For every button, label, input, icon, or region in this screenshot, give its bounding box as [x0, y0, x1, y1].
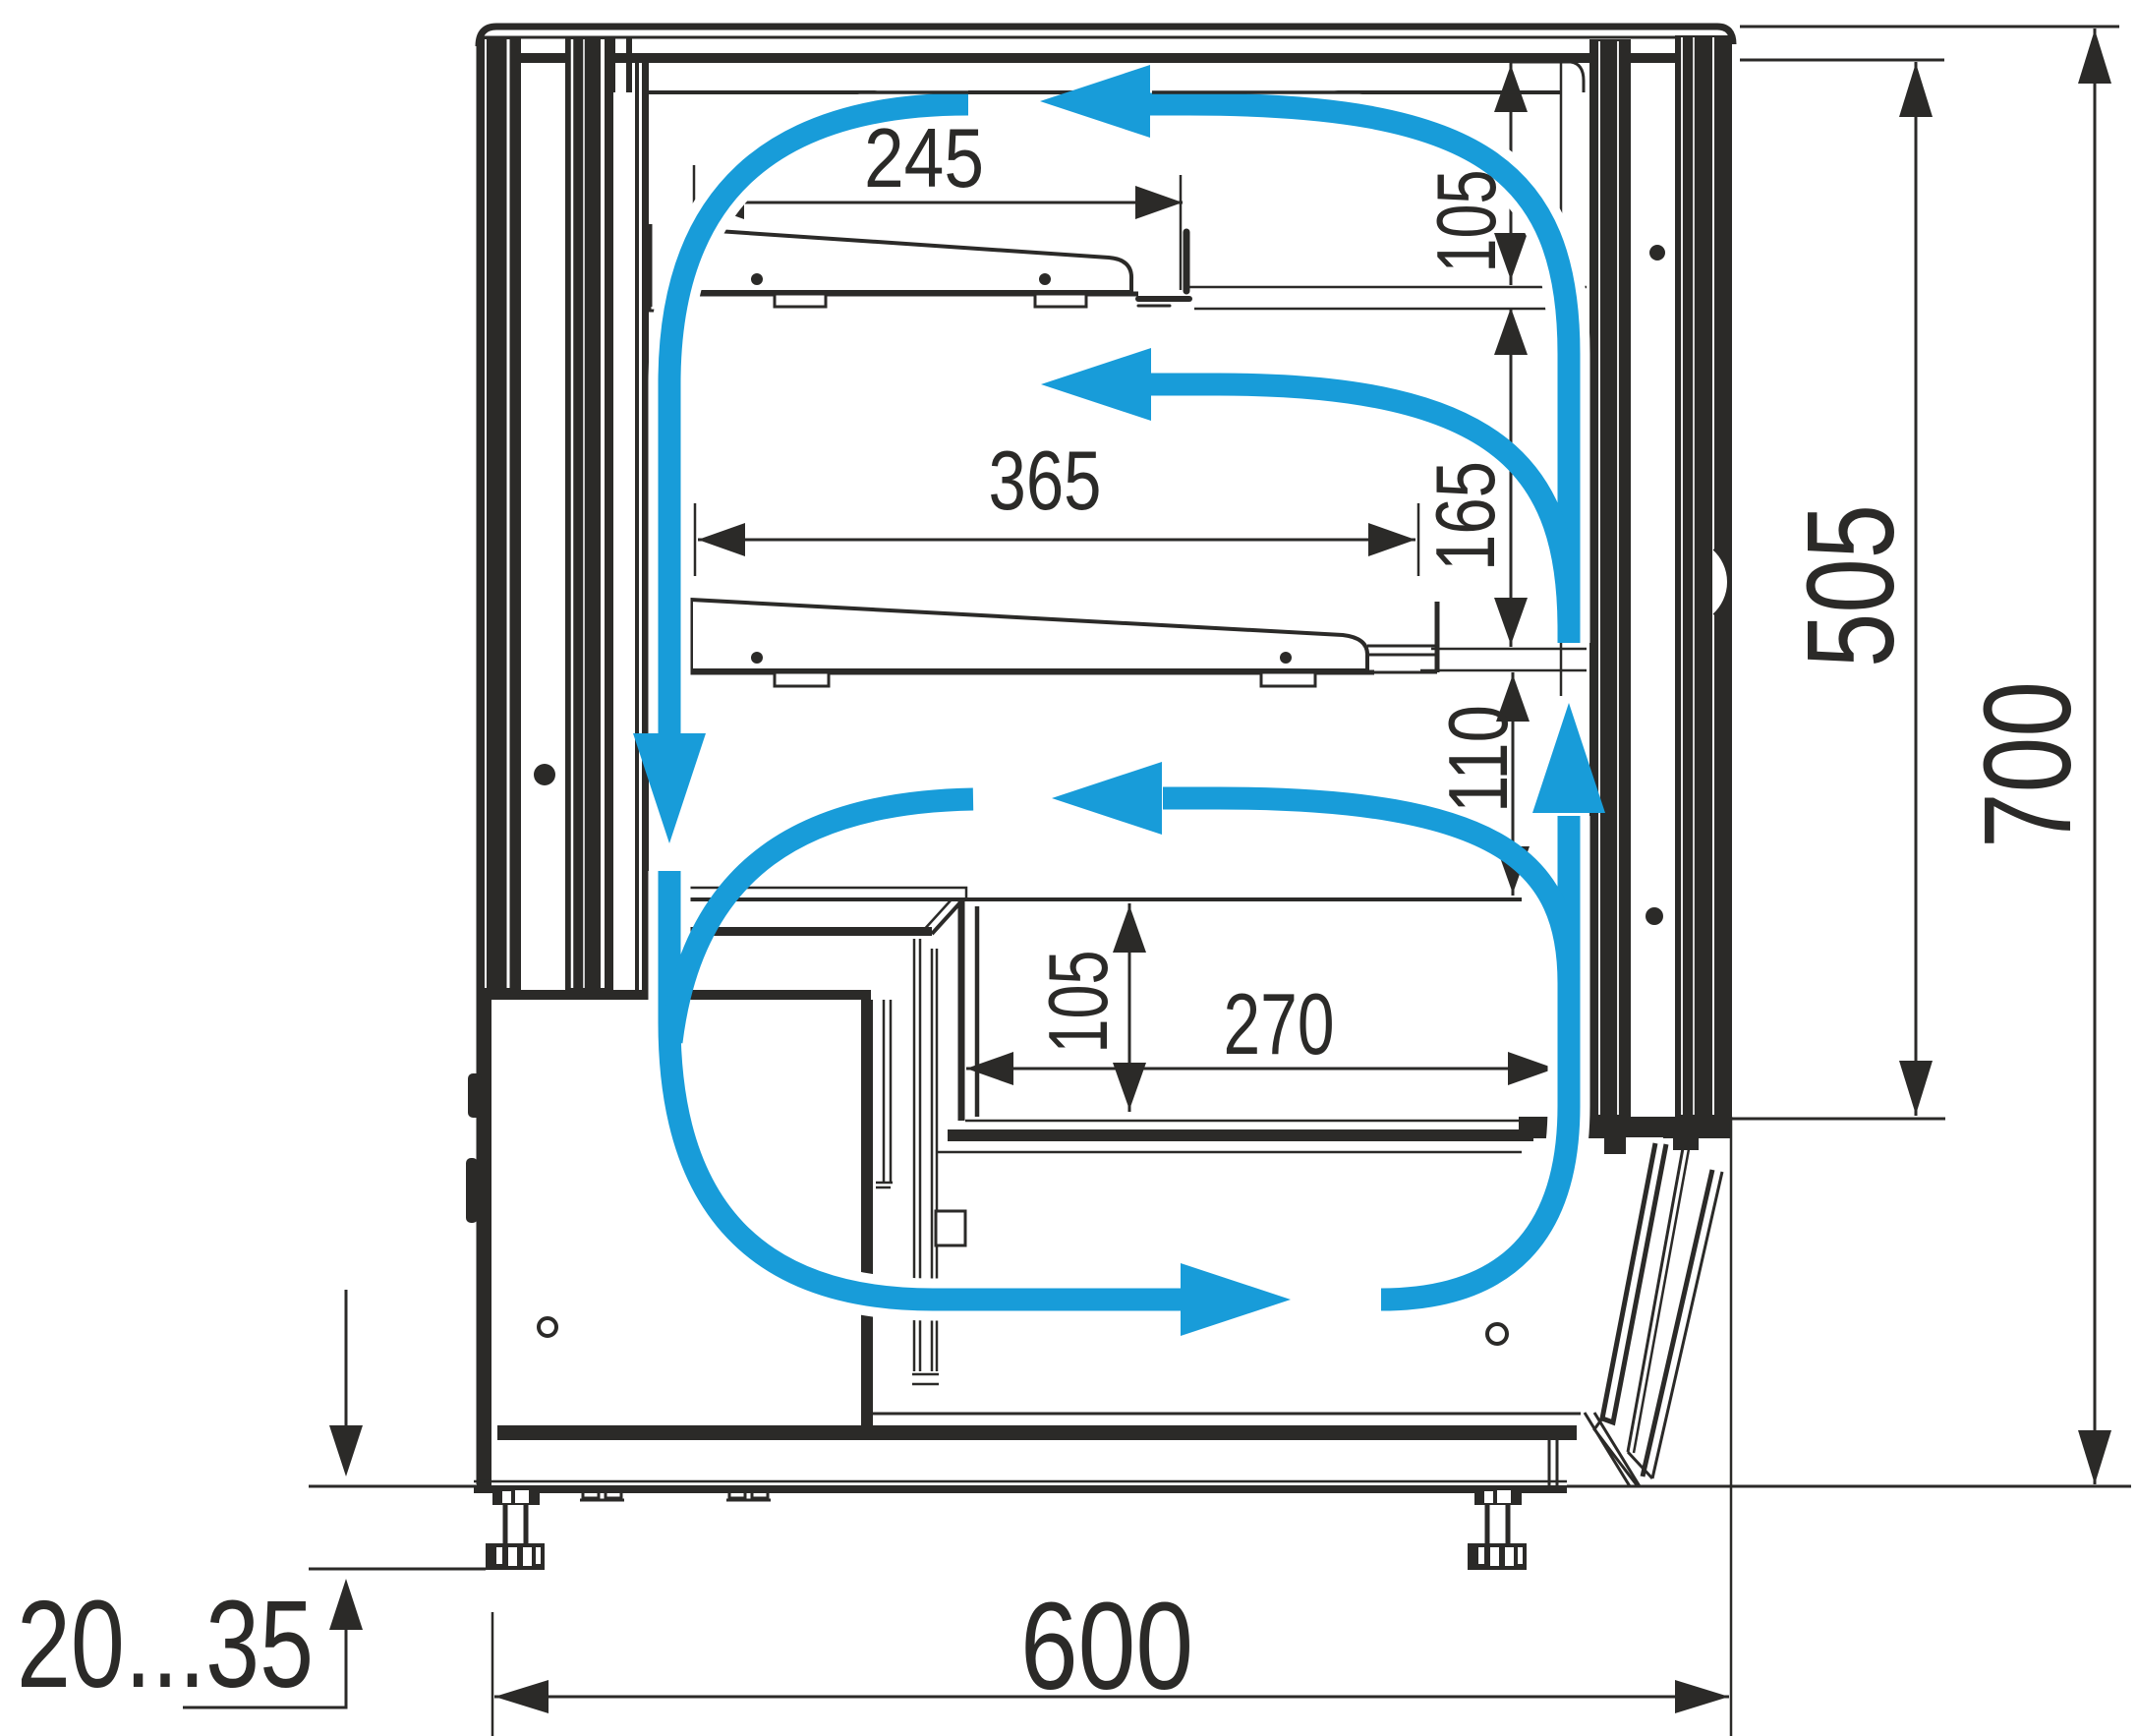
svg-text:600: 600: [1020, 1577, 1193, 1715]
svg-text:20...35: 20...35: [17, 1575, 314, 1713]
svg-text:245: 245: [864, 112, 984, 205]
svg-text:270: 270: [1224, 975, 1335, 1072]
svg-text:110: 110: [1432, 705, 1526, 813]
svg-text:700: 700: [1958, 681, 2097, 848]
svg-text:165: 165: [1419, 461, 1513, 571]
svg-text:365: 365: [989, 434, 1102, 528]
svg-text:105: 105: [1420, 170, 1514, 273]
svg-text:105: 105: [1032, 951, 1126, 1054]
svg-text:505: 505: [1781, 504, 1920, 667]
